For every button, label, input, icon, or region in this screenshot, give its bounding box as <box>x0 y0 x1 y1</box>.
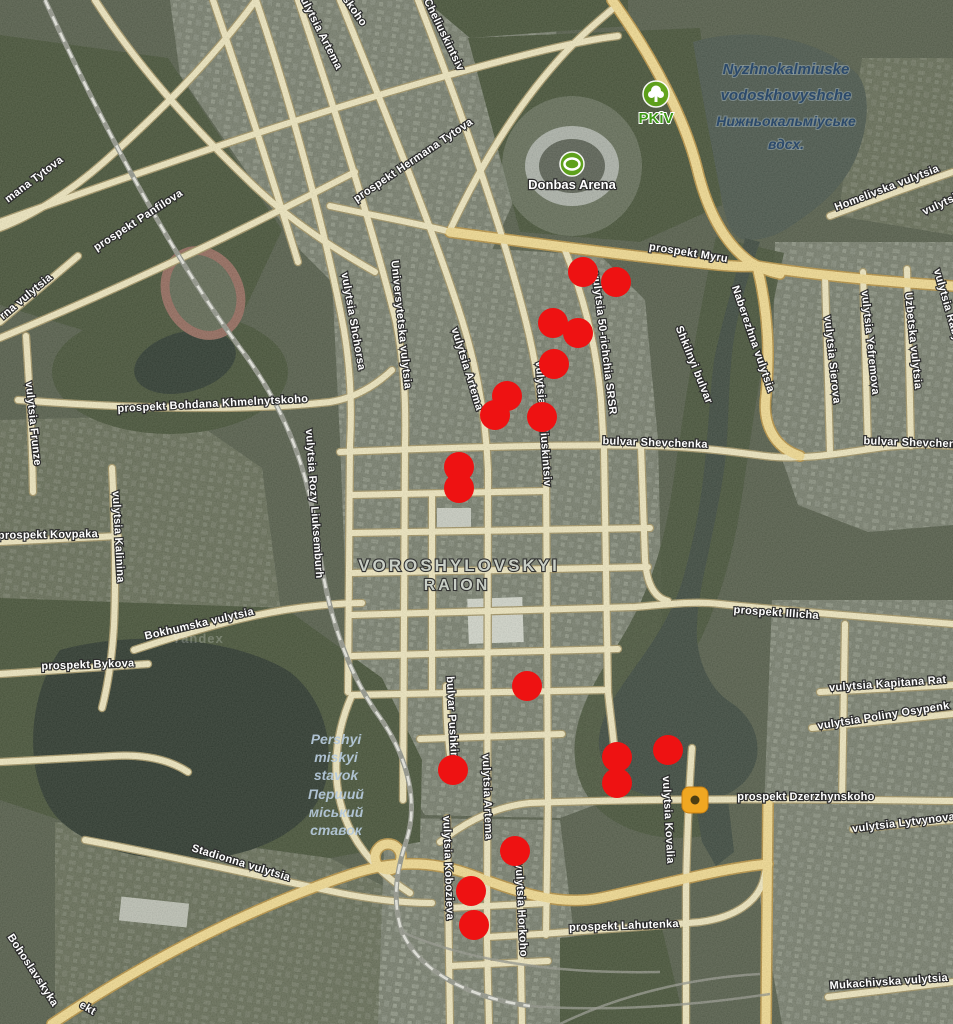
map-label-pkiv: PKiV <box>638 110 673 127</box>
map-label-pershyi: Pershyi <box>311 731 363 747</box>
map-canvas: prospekt Hermana Tytovamana Tytovaprospe… <box>0 0 953 1024</box>
map-label-stavok: stavok <box>314 767 360 783</box>
map-label-vodoskhovyshche: vodoskhovyshche <box>721 87 852 104</box>
map-label-prospekt-dzerzhynskoho: prospekt Dzerzhynskoho <box>737 791 874 803</box>
red-marker[interactable] <box>527 402 557 432</box>
red-marker[interactable] <box>568 257 598 287</box>
red-marker[interactable] <box>563 318 593 348</box>
map-label-raion: RAION <box>424 577 491 594</box>
map-label-label: Перший <box>308 786 364 802</box>
orange-transit-marker[interactable] <box>682 787 708 813</box>
red-marker[interactable] <box>602 742 632 772</box>
red-marker[interactable] <box>456 876 486 906</box>
map-watermark: Yandex <box>172 631 224 646</box>
red-marker[interactable] <box>601 267 631 297</box>
satellite-map-viewport[interactable]: prospekt Hermana Tytovamana Tytovaprospe… <box>0 0 953 1024</box>
red-marker[interactable] <box>444 473 474 503</box>
park-icon[interactable] <box>643 81 669 107</box>
map-label-label: міський <box>309 804 364 820</box>
red-marker[interactable] <box>539 349 569 379</box>
map-label-label: вдсх. <box>768 136 804 152</box>
red-marker[interactable] <box>438 755 468 785</box>
stadium-icon[interactable] <box>560 152 584 176</box>
red-marker[interactable] <box>500 836 530 866</box>
red-marker[interactable] <box>602 768 632 798</box>
map-label-miskyi: miskyi <box>314 749 359 765</box>
map-label-donbas-arena: Donbas Arena <box>528 177 616 192</box>
map-label-label: ставок <box>310 822 363 838</box>
map-label-voroshylovskyi: VOROSHYLOVSKYI <box>358 556 560 575</box>
map-label-label: Нижньокальміуське <box>716 113 856 129</box>
red-marker[interactable] <box>480 400 510 430</box>
map-label-prospekt-kovpaka: prospekt Kovpaka <box>0 528 99 542</box>
red-marker[interactable] <box>653 735 683 765</box>
red-marker[interactable] <box>512 671 542 701</box>
red-marker[interactable] <box>459 910 489 940</box>
map-label-nyzhnokalmiuske: Nyzhnokalmiuske <box>723 61 850 78</box>
satellite-texture <box>0 0 953 1024</box>
